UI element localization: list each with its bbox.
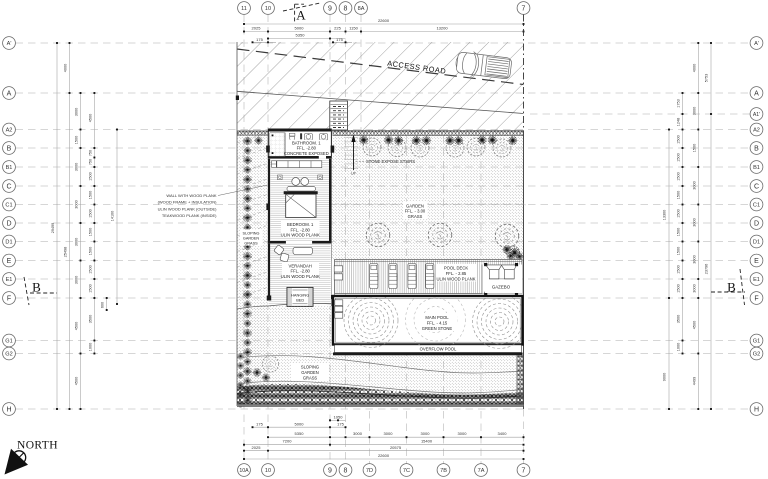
svg-text:175: 175 xyxy=(337,421,344,426)
svg-text:A': A' xyxy=(7,41,12,47)
svg-text:3000: 3000 xyxy=(75,276,79,284)
svg-text:3000: 3000 xyxy=(75,108,79,116)
svg-text:1500: 1500 xyxy=(677,209,681,217)
svg-text:1500: 1500 xyxy=(677,284,681,292)
svg-text:FFL. -2.80: FFL. -2.80 xyxy=(291,269,311,274)
svg-text:C1: C1 xyxy=(5,203,12,209)
svg-text:VERANDAH: VERANDAH xyxy=(289,263,312,268)
svg-text:22600: 22600 xyxy=(378,18,390,23)
svg-text:4500: 4500 xyxy=(75,377,79,385)
svg-text:FFL. -2.80: FFL. -2.80 xyxy=(291,227,311,232)
svg-text:WALL WITH WOOD PLANK: WALL WITH WOOD PLANK xyxy=(166,193,216,198)
svg-text:OVERFLOW POOL: OVERFLOW POOL xyxy=(420,346,457,351)
svg-text:9: 9 xyxy=(328,6,332,13)
svg-text:H: H xyxy=(6,407,11,414)
svg-text:GARDEN: GARDEN xyxy=(301,370,319,375)
svg-text:1050: 1050 xyxy=(334,415,344,420)
svg-text:10: 10 xyxy=(265,6,271,12)
svg-text:14100: 14100 xyxy=(111,211,115,222)
svg-text:4500: 4500 xyxy=(692,321,696,329)
svg-text:3000: 3000 xyxy=(75,200,79,208)
svg-text:F: F xyxy=(754,296,758,303)
svg-text:750: 750 xyxy=(88,159,92,165)
svg-text:(WOOD FRAME + INSULATION): (WOOD FRAME + INSULATION) xyxy=(158,200,218,205)
svg-text:C: C xyxy=(6,184,11,191)
svg-text:GARDEN: GARDEN xyxy=(406,203,424,208)
svg-text:5000: 5000 xyxy=(295,25,305,30)
svg-text:2025: 2025 xyxy=(252,445,262,450)
svg-text:9: 9 xyxy=(328,468,332,475)
svg-text:3000: 3000 xyxy=(353,431,363,436)
svg-text:1500: 1500 xyxy=(88,172,92,180)
svg-text:G1: G1 xyxy=(5,339,12,345)
svg-text:7A: 7A xyxy=(478,468,485,474)
svg-text:SLOPING: SLOPING xyxy=(243,231,260,235)
svg-text:FFL. - 3.00: FFL. - 3.00 xyxy=(405,209,426,214)
svg-text:3000: 3000 xyxy=(421,431,431,436)
svg-text:15400: 15400 xyxy=(421,439,433,444)
svg-text:1000: 1000 xyxy=(88,343,92,351)
svg-text:20575: 20575 xyxy=(390,445,402,450)
svg-text:4500: 4500 xyxy=(75,322,79,330)
svg-text:1500: 1500 xyxy=(88,209,92,217)
svg-text:G2: G2 xyxy=(753,352,760,358)
svg-text:22600: 22600 xyxy=(378,453,390,458)
svg-text:3000: 3000 xyxy=(75,163,79,171)
svg-text:5350: 5350 xyxy=(296,32,306,37)
svg-text:7200: 7200 xyxy=(283,439,293,444)
svg-text:A: A xyxy=(754,91,759,98)
svg-text:NORTH: NORTH xyxy=(17,440,58,452)
svg-text:1500: 1500 xyxy=(88,265,92,273)
svg-text:ULIN WOOD PLANK: ULIN WOOD PLANK xyxy=(281,274,320,279)
svg-text:7D: 7D xyxy=(366,468,373,474)
svg-text:1500: 1500 xyxy=(88,247,92,255)
svg-text:10A: 10A xyxy=(239,468,249,474)
svg-text:3000: 3000 xyxy=(692,255,696,263)
svg-text:A: A xyxy=(296,8,306,23)
svg-text:1500: 1500 xyxy=(677,265,681,273)
svg-text:B: B xyxy=(32,280,41,295)
svg-text:FFL. -2.80: FFL. -2.80 xyxy=(297,146,317,151)
svg-text:MAIN POOL: MAIN POOL xyxy=(425,315,449,320)
svg-text:4000: 4000 xyxy=(64,64,68,72)
svg-text:A: A xyxy=(7,91,12,98)
svg-text:1500: 1500 xyxy=(677,135,681,143)
svg-text:B: B xyxy=(754,146,759,153)
svg-text:POOL DECK: POOL DECK xyxy=(444,266,468,271)
svg-text:B: B xyxy=(7,146,12,153)
svg-text:175: 175 xyxy=(256,37,263,42)
svg-text:BEDROOM. 1: BEDROOM. 1 xyxy=(287,222,314,227)
svg-text:600: 600 xyxy=(101,302,105,308)
svg-text:1500: 1500 xyxy=(677,247,681,255)
svg-text:STONE EXPOSE STSIRS: STONE EXPOSE STSIRS xyxy=(366,159,415,164)
svg-text:1500: 1500 xyxy=(88,284,92,292)
svg-text:1500: 1500 xyxy=(677,153,681,161)
svg-text:ULIN WOOD PLANK: ULIN WOOD PLANK xyxy=(436,276,475,281)
svg-text:E1: E1 xyxy=(6,277,13,283)
svg-text:1500: 1500 xyxy=(88,228,92,236)
svg-text:1500: 1500 xyxy=(692,144,696,152)
svg-text:B1: B1 xyxy=(753,165,760,171)
svg-text:A': A' xyxy=(754,41,759,47)
svg-text:A2: A2 xyxy=(753,128,760,134)
svg-text:GRASS: GRASS xyxy=(408,214,423,219)
svg-text:1500: 1500 xyxy=(75,136,79,144)
svg-text:7: 7 xyxy=(522,6,526,13)
svg-text:D1: D1 xyxy=(5,240,12,246)
svg-text:7C: 7C xyxy=(403,468,410,474)
svg-text:1500: 1500 xyxy=(88,191,92,199)
svg-text:13200: 13200 xyxy=(436,25,448,30)
svg-text:3400: 3400 xyxy=(498,431,508,436)
svg-text:13300: 13300 xyxy=(663,210,667,221)
svg-text:2025: 2025 xyxy=(252,25,262,30)
svg-text:GRASS: GRASS xyxy=(244,241,258,245)
svg-text:A2: A2 xyxy=(6,128,13,134)
svg-text:1500: 1500 xyxy=(677,172,681,180)
svg-text:E: E xyxy=(7,258,12,265)
svg-text:750: 750 xyxy=(88,150,92,156)
svg-text:FFL. - 2.85: FFL. - 2.85 xyxy=(446,271,467,276)
svg-text:SLOPING: SLOPING xyxy=(301,364,319,369)
svg-text:1248: 1248 xyxy=(677,118,681,126)
svg-text:D: D xyxy=(754,221,759,228)
svg-text:F: F xyxy=(7,296,11,303)
svg-text:23796: 23796 xyxy=(705,264,709,275)
svg-text:TEAKWOOD PLANK (INSIDE): TEAKWOOD PLANK (INSIDE) xyxy=(162,213,217,218)
svg-text:UP: UP xyxy=(351,172,355,176)
svg-text:D: D xyxy=(6,221,11,228)
svg-text:1500: 1500 xyxy=(677,228,681,236)
svg-text:CONCRETE EXPOSED: CONCRETE EXPOSED xyxy=(284,151,329,156)
svg-text:G2: G2 xyxy=(5,352,12,358)
svg-text:H: H xyxy=(754,407,759,414)
svg-text:1753: 1753 xyxy=(677,99,681,107)
svg-text:175: 175 xyxy=(256,421,263,426)
svg-text:GRASS: GRASS xyxy=(303,376,318,381)
svg-text:11: 11 xyxy=(241,6,247,12)
svg-text:3000: 3000 xyxy=(692,107,696,115)
svg-text:B1: B1 xyxy=(6,165,13,171)
svg-text:ULIN WOOD PLANK: ULIN WOOD PLANK xyxy=(281,233,320,238)
svg-text:ULIN WOOD PLANK (OUTSIDE): ULIN WOOD PLANK (OUTSIDE) xyxy=(158,206,218,211)
svg-text:3000: 3000 xyxy=(692,181,696,189)
svg-text:7B: 7B xyxy=(440,468,447,474)
svg-text:4499: 4499 xyxy=(692,377,696,385)
svg-text:7: 7 xyxy=(522,468,526,475)
svg-text:3500: 3500 xyxy=(677,315,681,323)
svg-text:3000: 3000 xyxy=(458,431,468,436)
svg-text:8: 8 xyxy=(344,6,348,13)
svg-text:175: 175 xyxy=(336,37,343,42)
svg-text:G1: G1 xyxy=(753,339,760,345)
svg-text:3500: 3500 xyxy=(88,315,92,323)
svg-text:A1': A1' xyxy=(753,112,760,118)
svg-text:1500: 1500 xyxy=(677,191,681,199)
svg-text:25498: 25498 xyxy=(64,247,68,258)
svg-text:GREEN STONE: GREEN STONE xyxy=(422,326,453,331)
svg-text:29499: 29499 xyxy=(51,223,55,234)
svg-text:1150: 1150 xyxy=(349,25,358,30)
svg-text:8: 8 xyxy=(344,468,348,475)
svg-text:1000: 1000 xyxy=(677,343,681,351)
svg-text:C1: C1 xyxy=(753,203,760,209)
svg-text:E: E xyxy=(754,258,759,265)
svg-text:B: B xyxy=(727,280,736,295)
svg-text:5350: 5350 xyxy=(295,431,305,436)
svg-text:5753: 5753 xyxy=(705,74,709,82)
svg-text:5000: 5000 xyxy=(295,421,305,426)
svg-text:3000: 3000 xyxy=(384,431,394,436)
svg-text:C: C xyxy=(754,184,759,191)
svg-text:BED: BED xyxy=(296,298,304,303)
svg-text:FFL. - 4.15: FFL. - 4.15 xyxy=(427,320,448,325)
svg-text:D1: D1 xyxy=(753,240,760,246)
svg-text:3000: 3000 xyxy=(692,284,696,292)
svg-text:4500: 4500 xyxy=(88,114,92,122)
svg-text:E1: E1 xyxy=(753,277,760,283)
svg-text:10: 10 xyxy=(265,468,271,474)
svg-text:4000: 4000 xyxy=(692,64,696,72)
svg-text:9000: 9000 xyxy=(663,373,667,381)
svg-text:225: 225 xyxy=(334,25,341,30)
svg-text:3000: 3000 xyxy=(692,218,696,226)
svg-text:3000: 3000 xyxy=(75,238,79,246)
svg-text:8A: 8A xyxy=(358,6,365,12)
svg-text:GARDEN: GARDEN xyxy=(243,236,260,240)
svg-text:GAZEBO: GAZEBO xyxy=(492,284,511,289)
